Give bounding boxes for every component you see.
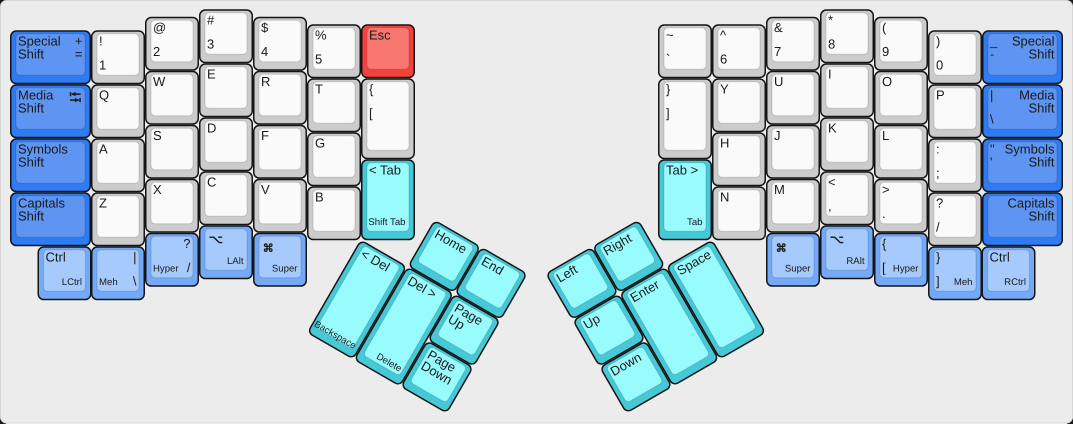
- svg-text:W: W: [153, 74, 166, 89]
- svg-text:{: {: [369, 82, 374, 97]
- svg-text:Y: Y: [720, 82, 729, 97]
- svg-text:X: X: [153, 182, 162, 197]
- svg-text:`: `: [666, 52, 670, 67]
- svg-text:RAlt: RAlt: [846, 256, 864, 267]
- svg-text:Meh: Meh: [954, 277, 973, 288]
- svg-text:|: |: [133, 250, 136, 265]
- svg-text:4: 4: [261, 44, 268, 59]
- svg-text:8: 8: [828, 37, 835, 52]
- svg-text:.: .: [882, 206, 886, 221]
- svg-text:< Tab: < Tab: [369, 163, 401, 178]
- svg-text:': ': [990, 155, 992, 170]
- svg-text:V: V: [261, 182, 270, 197]
- svg-text:?: ?: [936, 196, 943, 211]
- svg-text:7: 7: [774, 44, 781, 59]
- svg-text:LAlt: LAlt: [227, 256, 244, 267]
- svg-text:6: 6: [720, 52, 727, 67]
- svg-text:0: 0: [936, 58, 943, 73]
- svg-text:!: !: [99, 34, 103, 49]
- svg-text:]: ]: [936, 274, 940, 289]
- svg-text:Hyper: Hyper: [153, 263, 179, 274]
- svg-text:^: ^: [720, 28, 727, 43]
- svg-text:S: S: [153, 128, 162, 143]
- svg-text:U: U: [774, 74, 783, 89]
- svg-text:Z: Z: [99, 196, 107, 211]
- svg-text:Shift: Shift: [18, 47, 44, 62]
- svg-text:}: }: [666, 82, 671, 97]
- svg-text:Meh: Meh: [99, 277, 118, 288]
- svg-text:F: F: [261, 128, 269, 143]
- svg-text:Super: Super: [785, 263, 811, 274]
- svg-text:Esc: Esc: [369, 28, 391, 43]
- svg-text:O: O: [882, 74, 892, 89]
- svg-text:9: 9: [882, 44, 889, 59]
- svg-text:I: I: [828, 67, 832, 82]
- svg-text:<: <: [828, 175, 836, 190]
- svg-text:5: 5: [315, 52, 322, 67]
- svg-text:Shift: Shift: [18, 101, 44, 116]
- svg-text:): ): [936, 34, 940, 49]
- svg-text:[: [: [882, 260, 886, 275]
- svg-text:1: 1: [99, 58, 106, 73]
- svg-text:R: R: [261, 74, 270, 89]
- svg-text:RCtrl: RCtrl: [1004, 277, 1026, 288]
- svg-text:Tab: Tab: [687, 217, 702, 228]
- svg-text:&: &: [774, 20, 783, 35]
- svg-text:(: (: [882, 20, 887, 35]
- svg-text:C: C: [207, 175, 216, 190]
- svg-text:?: ?: [183, 236, 190, 251]
- svg-text:M: M: [774, 182, 785, 197]
- svg-text:@: @: [153, 20, 166, 35]
- svg-text:{: {: [882, 236, 887, 251]
- svg-text:\: \: [133, 274, 137, 289]
- svg-text:Shift: Shift: [1028, 155, 1054, 170]
- svg-text:D: D: [207, 121, 216, 136]
- svg-text:L: L: [882, 128, 889, 143]
- svg-text:;: ;: [936, 166, 940, 181]
- svg-text:Shift: Shift: [18, 209, 44, 224]
- svg-text:Tab >: Tab >: [666, 163, 698, 178]
- svg-text:Hyper: Hyper: [893, 263, 919, 274]
- svg-text:G: G: [315, 136, 325, 151]
- svg-text:P: P: [936, 88, 945, 103]
- svg-text:Ctrl: Ctrl: [46, 250, 66, 265]
- svg-text:/: /: [187, 260, 191, 275]
- svg-text:|: |: [990, 88, 993, 103]
- svg-text:Shift: Shift: [1028, 209, 1054, 224]
- svg-text:K: K: [828, 121, 837, 136]
- svg-text:Shift: Shift: [1028, 47, 1054, 62]
- svg-text:]: ]: [666, 106, 670, 121]
- svg-text:H: H: [720, 136, 729, 151]
- svg-text:$: $: [261, 20, 269, 35]
- svg-text:A: A: [99, 142, 108, 157]
- svg-text:Ctrl: Ctrl: [990, 250, 1010, 265]
- svg-text:Shift: Shift: [18, 155, 44, 170]
- svg-text:T: T: [315, 82, 323, 97]
- svg-text:Super: Super: [272, 263, 298, 274]
- svg-text:~: ~: [666, 28, 674, 43]
- svg-text:>: >: [882, 182, 890, 197]
- svg-text:-: -: [990, 47, 994, 62]
- svg-text:/: /: [936, 220, 940, 235]
- svg-text:}: }: [936, 250, 941, 265]
- svg-text:\: \: [990, 112, 994, 127]
- svg-text:,: ,: [828, 199, 832, 214]
- svg-text:LCtrl: LCtrl: [62, 277, 82, 288]
- svg-text:Shift: Shift: [1028, 101, 1054, 116]
- svg-text:*: *: [828, 13, 833, 28]
- svg-text:J: J: [774, 128, 781, 143]
- svg-text::: :: [936, 142, 940, 157]
- svg-text:=: =: [75, 47, 83, 62]
- svg-text:%: %: [315, 28, 327, 43]
- svg-text:B: B: [315, 190, 324, 205]
- svg-text:3: 3: [207, 37, 214, 52]
- svg-text:Q: Q: [99, 88, 109, 103]
- svg-text:Shift Tab: Shift Tab: [368, 217, 405, 228]
- svg-text:N: N: [720, 190, 729, 205]
- svg-text:2: 2: [153, 44, 160, 59]
- svg-text:E: E: [207, 67, 216, 82]
- svg-text:[: [: [369, 106, 373, 121]
- svg-text:#: #: [207, 13, 215, 28]
